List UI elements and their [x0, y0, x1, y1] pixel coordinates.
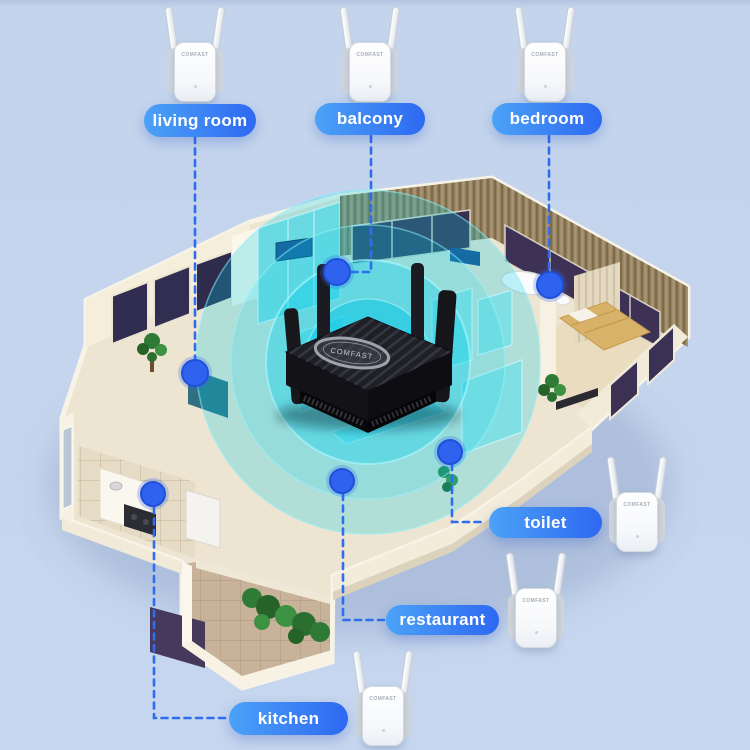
signal-dot-bedroom — [533, 268, 567, 302]
extender-body: COMFAST — [362, 686, 404, 746]
extender-balcony: COMFAST — [335, 4, 405, 104]
signal-dot-restaurant — [326, 465, 358, 497]
led-indicator-icon — [544, 85, 547, 88]
led-indicator-icon — [194, 85, 197, 88]
extender-logo: COMFAST — [181, 52, 208, 58]
signal-dot-balcony — [320, 255, 354, 289]
extender-body: COMFAST — [616, 492, 658, 552]
room-label-balcony: balcony — [315, 103, 425, 135]
led-indicator-icon — [369, 85, 372, 88]
extender-kitchen: COMFAST — [348, 648, 418, 748]
extender-restaurant: COMFAST — [501, 550, 571, 650]
extender-logo: COMFAST — [522, 598, 549, 604]
extender-logo: COMFAST — [531, 52, 558, 58]
extender-logo: COMFAST — [369, 696, 396, 702]
extender-toilet: COMFAST — [602, 454, 672, 554]
room-label-toilet: toilet — [489, 507, 602, 538]
signal-dot-living-room — [178, 356, 212, 390]
extender-body: COMFAST — [349, 42, 391, 102]
signal-dot-kitchen — [137, 478, 169, 510]
extender-body: COMFAST — [174, 42, 216, 102]
extender-body: COMFAST — [515, 588, 557, 648]
room-label-kitchen: kitchen — [229, 702, 348, 735]
room-label-living-room: living room — [144, 104, 256, 137]
signal-dot-toilet — [434, 436, 466, 468]
scene: WiFi6 COMFAST — [0, 0, 750, 750]
extender-living-room: COMFAST — [160, 4, 230, 104]
led-indicator-icon — [636, 535, 639, 538]
extender-body: COMFAST — [524, 42, 566, 102]
extender-bedroom: COMFAST — [510, 4, 580, 104]
led-indicator-icon — [382, 729, 385, 732]
extender-logo: COMFAST — [623, 502, 650, 508]
room-label-restaurant: restaurant — [386, 605, 499, 635]
led-indicator-icon — [535, 631, 538, 634]
extender-logo: COMFAST — [356, 52, 383, 58]
room-label-bedroom: bedroom — [492, 103, 602, 135]
